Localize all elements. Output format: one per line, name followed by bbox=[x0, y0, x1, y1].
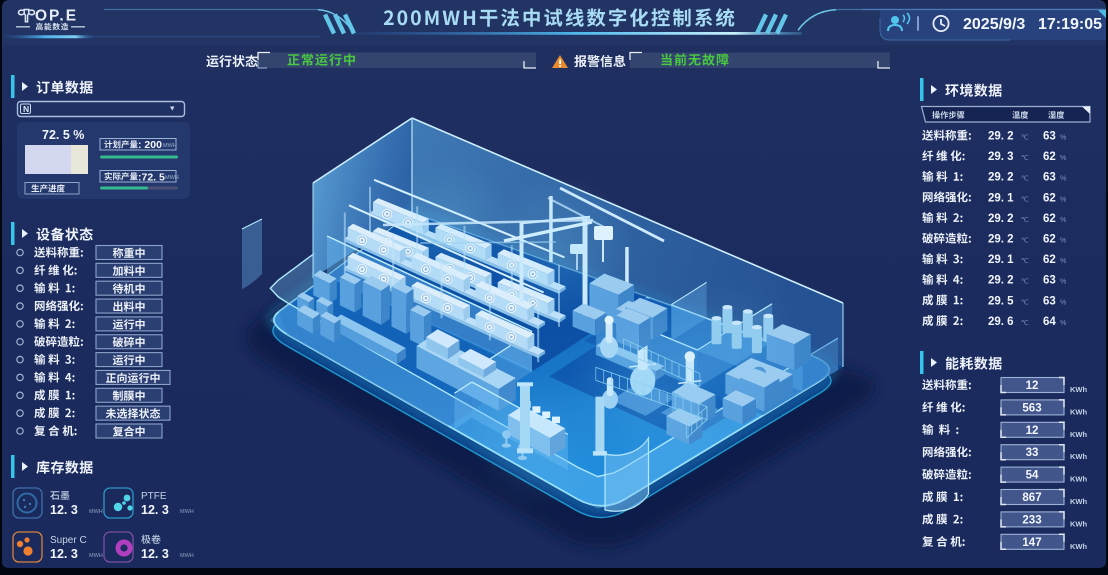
svg-text:62: 62 bbox=[1043, 234, 1056, 246]
svg-text:PTFE: PTFE bbox=[141, 491, 167, 502]
svg-text:563: 563 bbox=[1022, 402, 1041, 414]
svg-text:29. 2: 29. 2 bbox=[988, 131, 1014, 143]
svg-text:29. 1: 29. 1 bbox=[988, 254, 1014, 266]
svg-text:867: 867 bbox=[1022, 492, 1041, 504]
svg-text::72. 5: :72. 5 bbox=[138, 172, 165, 184]
svg-text:63: 63 bbox=[1043, 172, 1056, 184]
svg-text:℃: ℃ bbox=[1021, 238, 1029, 245]
svg-text:147: 147 bbox=[1022, 537, 1041, 549]
svg-text:KWh: KWh bbox=[1070, 407, 1087, 416]
svg-text:KWh: KWh bbox=[1070, 497, 1087, 506]
svg-text:29. 2: 29. 2 bbox=[988, 275, 1014, 287]
svg-text:29. 2: 29. 2 bbox=[988, 172, 1014, 184]
svg-text:℃: ℃ bbox=[1021, 135, 1029, 142]
svg-text:29. 5: 29. 5 bbox=[988, 295, 1014, 307]
svg-text:29. 2: 29. 2 bbox=[988, 213, 1014, 225]
svg-text:℃: ℃ bbox=[1021, 299, 1029, 306]
svg-text:62: 62 bbox=[1043, 151, 1056, 163]
svg-text:%: % bbox=[1060, 155, 1066, 162]
svg-text:℃: ℃ bbox=[1021, 320, 1029, 327]
svg-text:12. 3: 12. 3 bbox=[50, 547, 78, 561]
svg-text:%: % bbox=[1060, 258, 1066, 265]
svg-text:℃: ℃ bbox=[1021, 155, 1029, 162]
svg-text:KWh: KWh bbox=[1070, 385, 1087, 394]
svg-text:KWh: KWh bbox=[1070, 542, 1087, 551]
svg-text:63: 63 bbox=[1043, 131, 1056, 143]
svg-text:%: % bbox=[1060, 176, 1066, 183]
svg-text:12. 3: 12. 3 bbox=[141, 503, 169, 517]
svg-text:233: 233 bbox=[1022, 514, 1041, 526]
svg-text:KWh: KWh bbox=[1070, 475, 1087, 484]
svg-text:MWH: MWH bbox=[163, 143, 177, 149]
svg-text:MWH: MWH bbox=[180, 553, 194, 559]
svg-text:KWh: KWh bbox=[1070, 430, 1087, 439]
svg-text:29. 1: 29. 1 bbox=[988, 192, 1014, 204]
svg-text:%: % bbox=[1060, 135, 1066, 142]
svg-text:: 200: : 200 bbox=[138, 139, 162, 151]
svg-text:OP.E: OP.E bbox=[35, 8, 78, 25]
svg-text:MWH: MWH bbox=[89, 553, 103, 559]
svg-text:℃: ℃ bbox=[1021, 217, 1029, 224]
svg-text:%: % bbox=[1060, 299, 1066, 306]
svg-text:29. 2: 29. 2 bbox=[988, 234, 1014, 246]
svg-text:29. 3: 29. 3 bbox=[988, 151, 1014, 163]
svg-text:℃: ℃ bbox=[1021, 279, 1029, 286]
svg-text:62: 62 bbox=[1043, 213, 1056, 225]
svg-text:12. 3: 12. 3 bbox=[141, 547, 169, 561]
svg-text:62: 62 bbox=[1043, 254, 1056, 266]
svg-text:33: 33 bbox=[1026, 447, 1039, 459]
svg-text:MWH: MWH bbox=[180, 509, 194, 515]
svg-text:MWH: MWH bbox=[89, 509, 103, 515]
svg-text:2025/9/3: 2025/9/3 bbox=[963, 16, 1025, 33]
svg-text:63: 63 bbox=[1043, 275, 1056, 287]
svg-text:℃: ℃ bbox=[1021, 258, 1029, 265]
svg-text:12. 3: 12. 3 bbox=[50, 503, 78, 517]
svg-text:62: 62 bbox=[1043, 192, 1056, 204]
svg-text:64: 64 bbox=[1043, 316, 1056, 328]
svg-text:%: % bbox=[1060, 217, 1066, 224]
svg-text:Super C: Super C bbox=[50, 535, 87, 546]
svg-text:N: N bbox=[23, 104, 29, 114]
svg-text:72. 5 %: 72. 5 % bbox=[42, 128, 84, 142]
svg-text:12: 12 bbox=[1026, 425, 1039, 437]
svg-text:MWH: MWH bbox=[165, 175, 179, 181]
svg-text:℃: ℃ bbox=[1021, 196, 1029, 203]
svg-text:12: 12 bbox=[1026, 380, 1039, 392]
svg-text:%: % bbox=[1060, 238, 1066, 245]
svg-text:54: 54 bbox=[1026, 470, 1039, 482]
svg-text:%: % bbox=[1060, 279, 1066, 286]
svg-text:17:19:05: 17:19:05 bbox=[1038, 16, 1102, 33]
svg-text:%: % bbox=[1060, 196, 1066, 203]
svg-text:℃: ℃ bbox=[1021, 176, 1029, 183]
svg-text:KWh: KWh bbox=[1070, 452, 1087, 461]
svg-text:KWh: KWh bbox=[1070, 519, 1087, 528]
svg-text:63: 63 bbox=[1043, 295, 1056, 307]
svg-text:29. 6: 29. 6 bbox=[988, 316, 1014, 328]
svg-text:%: % bbox=[1060, 320, 1066, 327]
